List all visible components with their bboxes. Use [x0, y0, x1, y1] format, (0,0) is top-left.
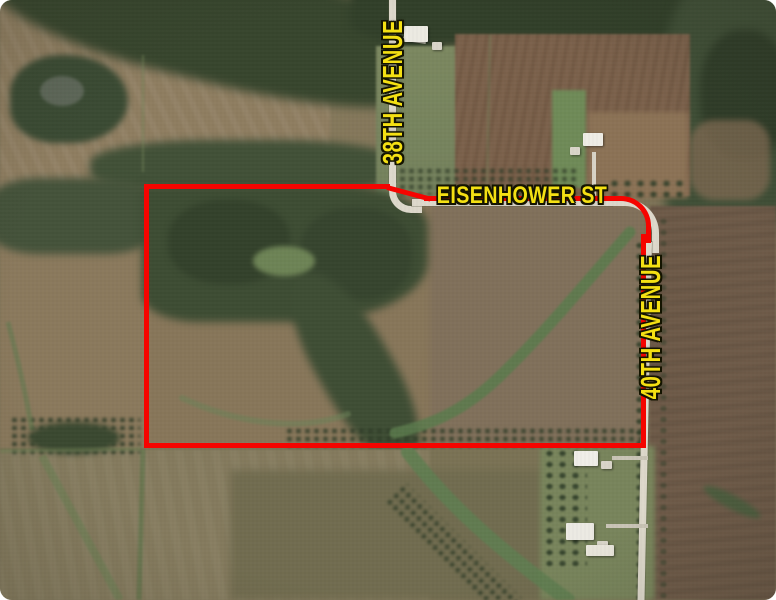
boundary-south	[144, 443, 646, 448]
creek-in-parcel	[395, 232, 630, 433]
road-label-40th-avenue: 40TH AVENUE	[635, 255, 667, 400]
field-line-left-diagonal	[8, 322, 32, 430]
field-edge-top-center	[487, 35, 490, 190]
farm-building-mid-2	[570, 147, 580, 155]
farm-building-mid-1	[583, 133, 603, 146]
house-bottom-right-2	[566, 523, 594, 540]
field-line-diagonal-bottom-left	[42, 456, 120, 600]
driveway-house-1	[612, 456, 648, 460]
road-label-eisenhower-st: EISENHOWER ST	[437, 182, 607, 210]
field-line-horizontal-left	[0, 449, 143, 451]
house-bottom-right-1	[574, 451, 598, 466]
house-bottom-right-1b	[601, 461, 612, 469]
fence-row-below-corner	[139, 449, 143, 600]
boundary-top-west	[144, 184, 390, 189]
driveway-house-2	[606, 524, 648, 528]
waterway-left-parcel	[182, 398, 348, 424]
boundary-west	[144, 184, 149, 448]
farm-building-top-2	[432, 42, 442, 50]
creek-below-parcel	[408, 452, 568, 600]
road-label-38th-avenue: 38TH AVENUE	[377, 20, 409, 165]
building-near-road-bottom	[586, 545, 614, 556]
aerial-map: 38TH AVENUE EISENHOWER ST 40TH AVENUE	[0, 0, 776, 600]
